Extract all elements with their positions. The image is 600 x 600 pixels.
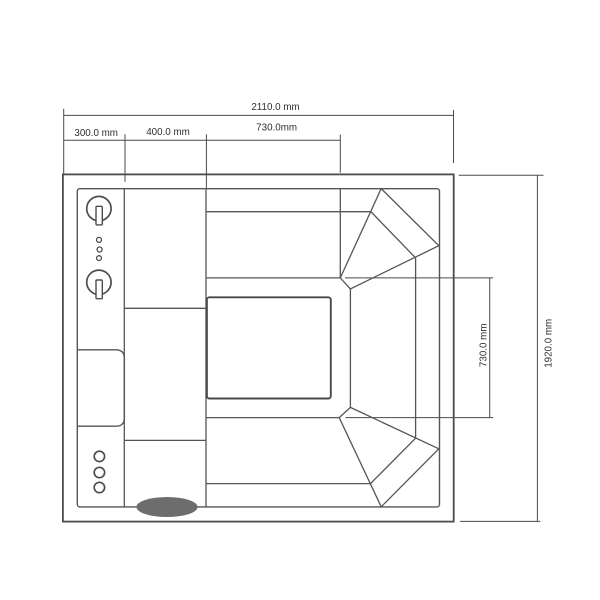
svg-text:730.0 mm: 730.0 mm — [478, 324, 489, 368]
svg-text:2110.0 mm: 2110.0 mm — [251, 102, 299, 113]
svg-text:730.0mm: 730.0mm — [256, 122, 297, 133]
svg-text:1920.0 mm: 1920.0 mm — [543, 319, 554, 368]
svg-text:400.0 mm: 400.0 mm — [146, 127, 190, 138]
svg-text:300.0 mm: 300.0 mm — [74, 128, 118, 139]
